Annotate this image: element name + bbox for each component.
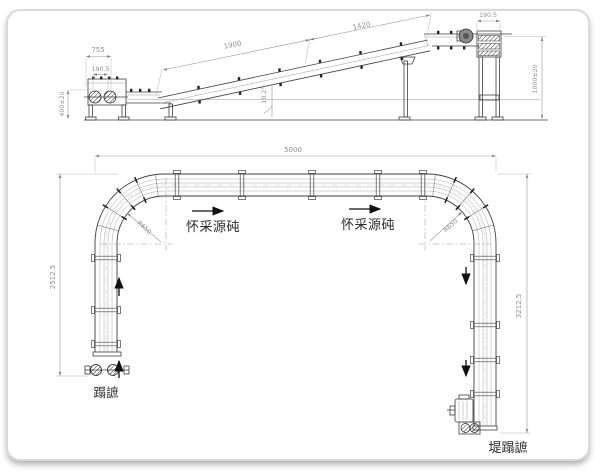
radius-right-label: R650 xyxy=(443,218,460,234)
infeed-unit xyxy=(84,77,129,121)
dim-2512-5-label: 2512.5 xyxy=(49,265,57,290)
dim-190-5-right-label: 190.5 xyxy=(479,12,497,19)
plan-infeed-drive xyxy=(85,352,129,376)
dim-1420-label: 1420 xyxy=(352,20,371,31)
dim-1000-label: 1000±20 xyxy=(532,64,539,93)
direction-label-left: 怀采源砘 xyxy=(186,219,240,234)
infeed-label: 蹋謶 xyxy=(93,385,119,400)
dim-incline-angle: 10.2° xyxy=(260,84,272,117)
drive-motor xyxy=(459,29,473,43)
dim-overall-width: 5000 xyxy=(95,146,496,172)
conveyor-drawing: 755 190.5 400±20 xyxy=(0,0,600,473)
dim-left-run: 2512.5 xyxy=(49,174,118,376)
dim-3212-5-label: 3212.5 xyxy=(515,294,523,319)
discharge-label: 堤蹋謶 xyxy=(488,440,527,455)
dim-infeed-height: 400±20 xyxy=(59,90,90,119)
right-run-supports xyxy=(471,255,500,398)
plan-view: R650 R650 xyxy=(49,146,531,455)
direction-label-right: 怀采源砘 xyxy=(341,217,395,232)
dim-190-5-left-label: 190.5 xyxy=(91,66,109,73)
incline-conveyor xyxy=(158,40,430,120)
dim-infeed-pulley: 190.5 xyxy=(91,66,109,90)
dim-1900-label: 1900 xyxy=(223,39,242,50)
plan-motor xyxy=(455,399,473,422)
drive-motor-flange xyxy=(457,31,461,41)
side-elevation-view: 755 190.5 400±20 xyxy=(59,12,548,120)
dim-incline: 1900 1420 xyxy=(156,13,431,95)
drive-drum xyxy=(477,31,501,57)
dim-discharge-height: 1000±20 xyxy=(504,37,546,120)
drawing-sheet: 755 190.5 400±20 xyxy=(0,0,600,473)
low-conveyor-section xyxy=(126,89,176,120)
dim-400-label: 400±20 xyxy=(59,91,66,116)
infeed-pulley xyxy=(89,91,101,103)
dim-right-run: 3212.5 xyxy=(498,174,531,433)
left-run-supports xyxy=(92,255,121,348)
top-run-supports xyxy=(174,171,427,200)
dim-discharge-width: 190.5 xyxy=(477,12,500,32)
dim-755-label: 755 xyxy=(91,46,104,54)
right-curve-module: R650 xyxy=(419,175,494,251)
left-curve-module: R650 xyxy=(97,175,172,251)
dim-5000-label: 5000 xyxy=(284,146,302,154)
dim-angle-label: 10.2° xyxy=(260,86,268,103)
discharge-section xyxy=(424,29,512,120)
infeed-pulley xyxy=(104,91,116,103)
dim-infeed-width: 755 xyxy=(86,46,111,90)
plan-discharge-drive xyxy=(447,395,497,434)
radius-left-label: R650 xyxy=(135,220,152,236)
